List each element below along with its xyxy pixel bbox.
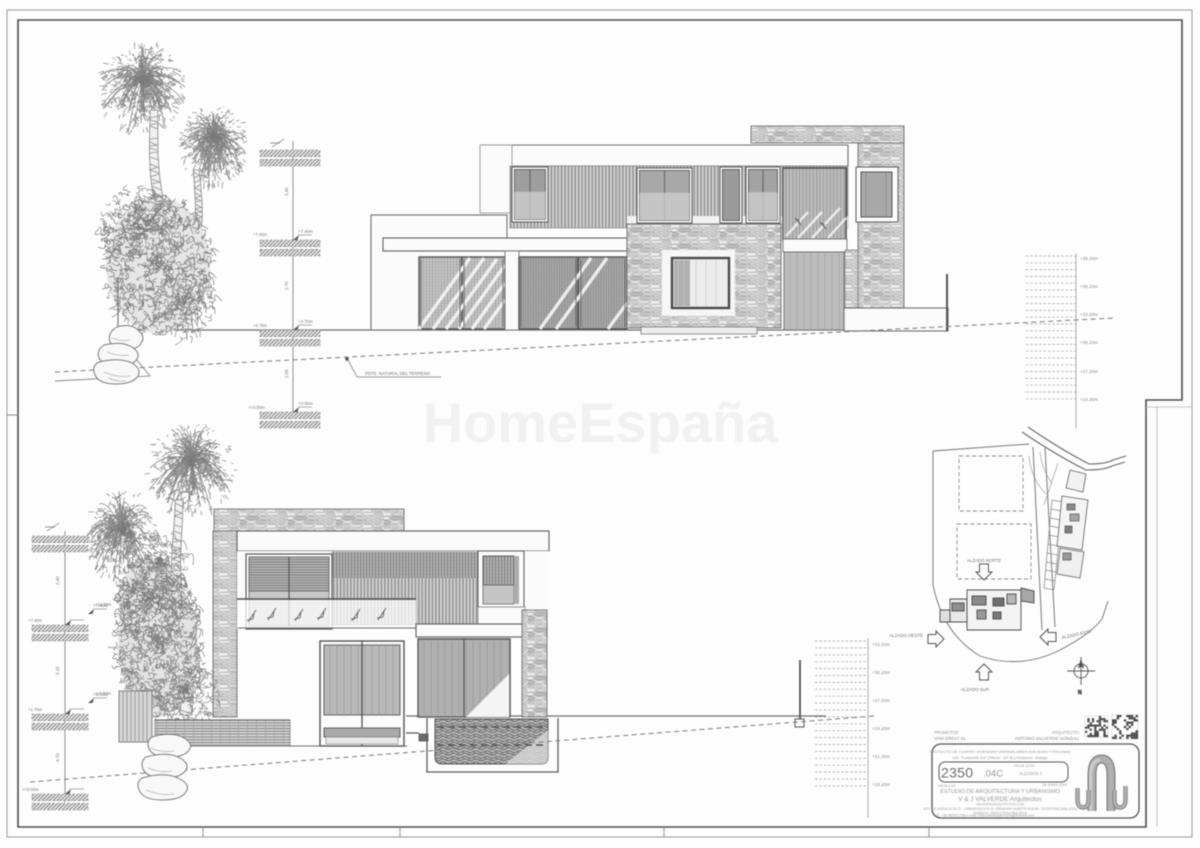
svg-text:+33.20m: +33.20m (1080, 312, 1098, 317)
svg-text:PROYECTO DE CUATRO VIVIENDAS U: PROYECTO DE CUATRO VIVIENDAS UNIFAMILIAR… (930, 749, 1071, 754)
svg-text:.04C: .04C (983, 769, 1003, 780)
svg-text:ALZADO SUR: ALZADO SUR (961, 687, 989, 692)
svg-text:+30.20m: +30.20m (872, 670, 890, 675)
svg-text:+30.20m: +30.20m (1080, 340, 1098, 345)
svg-text:N: N (1078, 690, 1082, 696)
svg-text:VPM GREAT SL: VPM GREAT SL (934, 736, 967, 741)
svg-text:HOJA 1/10: HOJA 1/10 (938, 784, 955, 788)
svg-text:HOJA 1/100: HOJA 1/100 (1014, 764, 1034, 768)
svg-text:+0.00m: +0.00m (298, 401, 313, 406)
svg-text:2.70: 2.70 (284, 281, 289, 290)
svg-text:VALVERDEARQUITECTOS.COM: VALVERDEARQUITECTOS.COM (976, 803, 1024, 807)
svg-text:+21.20m: +21.20m (872, 754, 890, 759)
svg-text:+4.70m: +4.70m (298, 319, 313, 324)
svg-text:ANTONIO VALVERDE GONZALI: ANTONIO VALVERDE GONZALI (1015, 736, 1079, 741)
svg-text:+7.40m: +7.40m (28, 618, 43, 623)
svg-text:+24.20m: +24.20m (872, 726, 890, 731)
svg-text:+27.20m: +27.20m (872, 698, 890, 703)
svg-text:+/-0.00m: +/-0.00m (248, 405, 265, 410)
svg-text:2.58: 2.58 (284, 369, 289, 378)
svg-text:28 JUNIO 2004: 28 JUNIO 2004 (1042, 783, 1067, 787)
svg-text:+14.20m: +14.20m (95, 602, 112, 607)
svg-text:ALZADO NORTE: ALZADO NORTE (967, 558, 1001, 563)
svg-text:+7.40m: +7.40m (253, 232, 268, 237)
svg-text:+36.20m: +36.20m (1080, 284, 1098, 289)
svg-text:ESTUDIO DE ARQUITECTURA Y URBA: ESTUDIO DE ARQUITECTURA Y URBANISMO (940, 789, 1060, 795)
svg-text:+24.20m: +24.20m (1080, 397, 1098, 402)
svg-text:ALZADO OESTE: ALZADO OESTE (889, 633, 923, 638)
svg-text:3.10: 3.10 (55, 666, 60, 675)
svg-text:+4.70m: +4.70m (253, 323, 268, 328)
svg-text:3.40: 3.40 (55, 576, 60, 585)
svg-text:4.70: 4.70 (55, 753, 60, 762)
svg-text:PROMOTOR: PROMOTOR (934, 730, 959, 735)
svg-text:c/ib. “Fontanella Sur” (Tiller: c/ib. “Fontanella Sur” (Tilleria - UR 8)… (953, 756, 1049, 760)
svg-text:+18.20m: +18.20m (872, 782, 890, 787)
svg-text:3.40: 3.40 (284, 187, 289, 196)
svg-text:+39.20m: +39.20m (1080, 256, 1098, 261)
svg-text:2350: 2350 (941, 765, 973, 781)
svg-text:+27.20m: +27.20m (1080, 369, 1098, 374)
svg-text:+7.40m: +7.40m (298, 229, 313, 234)
svg-text:HomeEspaña: HomeEspaña (423, 391, 779, 454)
svg-text:Tf. +34 952521756 e-mail: che: Tf. +34 952521756 e-mail: chel.chandlopi… (936, 814, 1035, 818)
svg-text:+/-0.00m: +/-0.00m (22, 787, 39, 792)
svg-text:ARQUITECTO: ARQUITECTO (1052, 730, 1080, 735)
svg-text:ALZADOS-1: ALZADOS-1 (1019, 771, 1043, 776)
svg-text:+1.70m: +1.70m (28, 707, 43, 712)
svg-text:+33.20m: +33.20m (872, 642, 890, 647)
svg-text:PDTE. NATURAL DEL TERRENO: PDTE. NATURAL DEL TERRENO (365, 371, 431, 376)
svg-text:+11.50m: +11.50m (95, 691, 112, 696)
